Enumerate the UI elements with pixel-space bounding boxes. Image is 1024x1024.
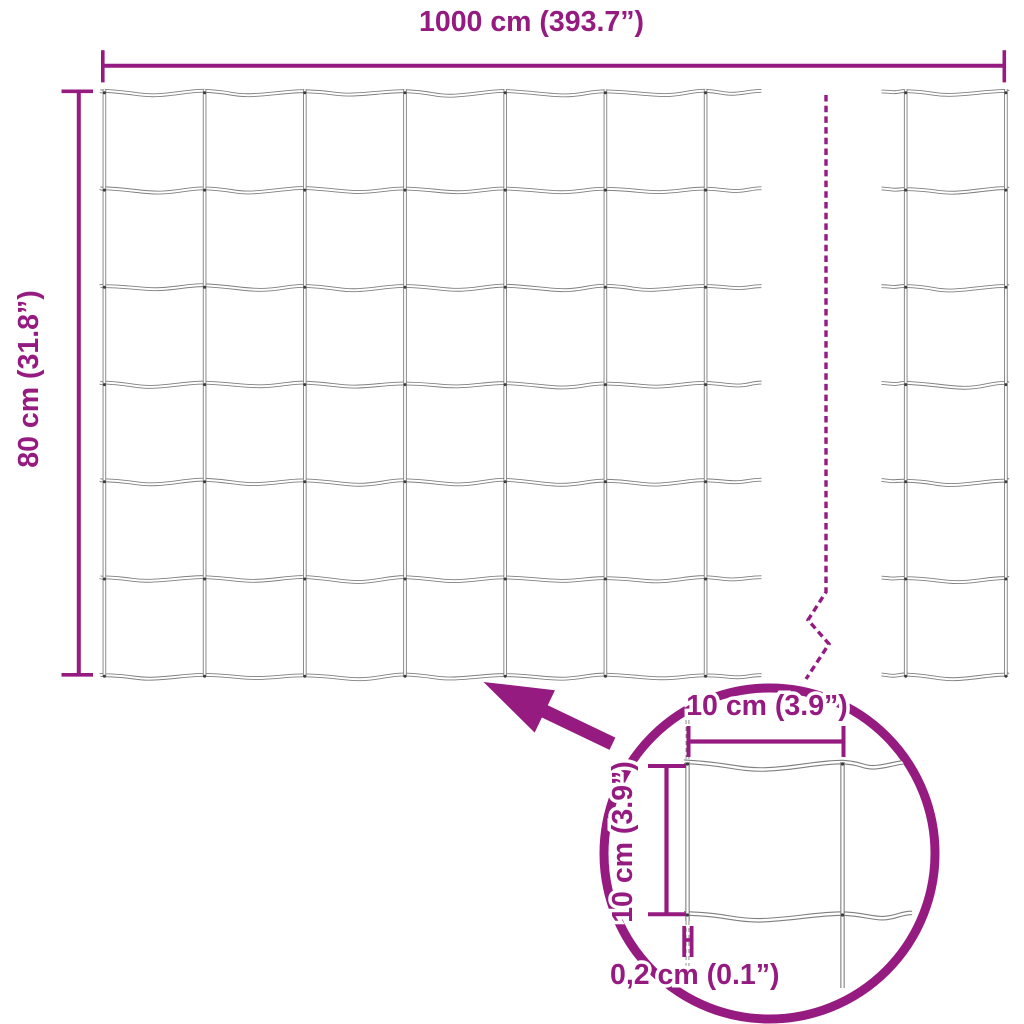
svg-text:10 cm (3.9”): 10 cm (3.9”) [686,690,848,722]
svg-text:1000 cm (393.7”): 1000 cm (393.7”) [419,6,644,38]
svg-text:0,2 cm (0.1”): 0,2 cm (0.1”) [610,959,780,991]
svg-text:80 cm (31.8”): 80 cm (31.8”) [13,290,45,467]
svg-text:10 cm (3.9”): 10 cm (3.9”) [607,761,639,923]
